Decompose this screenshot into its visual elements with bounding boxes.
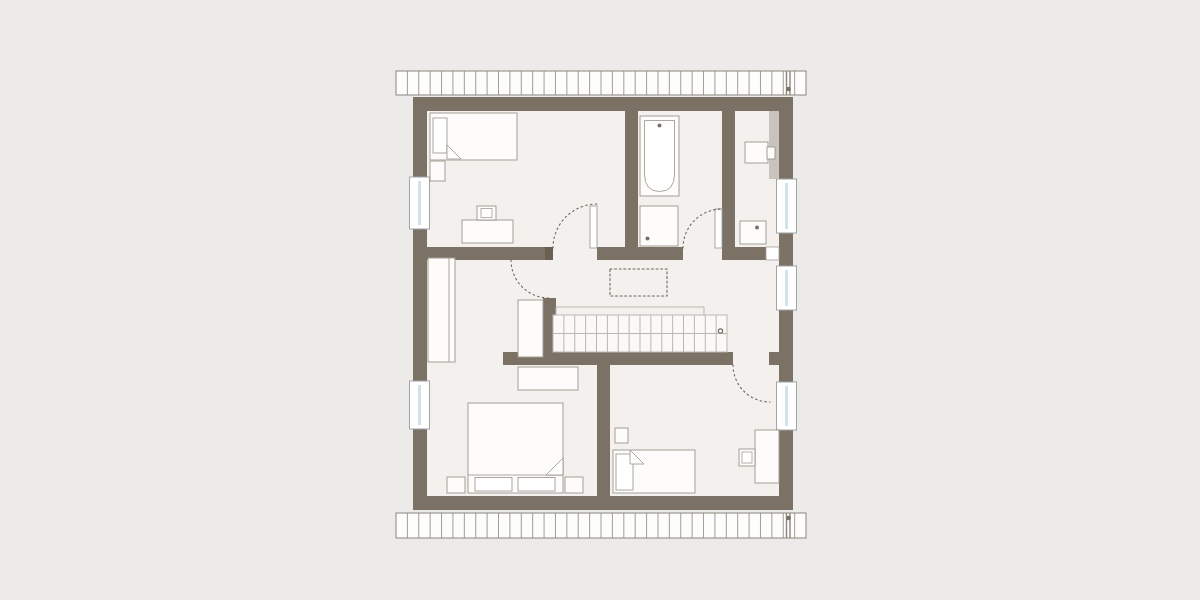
bathtub-basin (645, 121, 675, 192)
window-left-2-glass (418, 385, 421, 425)
window-right-1-glass (785, 183, 788, 229)
wall-bed1-bath (625, 111, 638, 260)
shower-tray (640, 206, 678, 246)
chair-room2 (767, 147, 775, 159)
door-leaf-bedroom1 (590, 206, 597, 248)
roof-strip-top-marker (786, 87, 790, 91)
chair-guest-seat (742, 452, 752, 463)
bathtub-faucet (658, 124, 662, 128)
wardrobe-hall (428, 258, 455, 362)
door-leaf-room2 (766, 247, 779, 260)
floor-plan-svg (0, 0, 1200, 600)
window-left-1-glass (418, 181, 421, 225)
door-leaf-bath (715, 209, 722, 248)
fixtures-bathroom (640, 116, 679, 246)
bed-main-pillow-right (518, 478, 555, 492)
bed-child-pillow (433, 118, 447, 153)
outer-wall-top (413, 97, 793, 111)
shower-drain (646, 237, 650, 241)
nightstand-main-left (447, 477, 465, 493)
wall-hall-bottom-stub (769, 352, 779, 365)
window-right-2-glass (785, 270, 788, 306)
nightstand-child (430, 161, 445, 181)
bed-main-pillow-left (475, 478, 512, 492)
closet-alcove (518, 300, 543, 357)
outer-wall-bottom (413, 496, 793, 510)
nightstand-guest (615, 428, 628, 443)
wall-bath-room2 (722, 111, 735, 247)
knee-wall-strip (769, 111, 779, 179)
roof-strip-bottom-marker (786, 516, 790, 520)
washbasin-room2-drain (755, 226, 759, 230)
desk-room2 (745, 142, 768, 163)
nightstand-main-right (565, 477, 583, 493)
desk-child (462, 220, 513, 243)
dresser-main (518, 367, 578, 390)
washbasin-room2 (740, 221, 766, 244)
desk-guest (755, 430, 779, 483)
wall-hall-top-c (722, 247, 766, 260)
wall-hall-top-a-jamb (545, 247, 553, 260)
wall-hall-top-b (597, 247, 683, 260)
wall-bedrooms-divider (597, 365, 610, 496)
window-right-3-glass (785, 386, 788, 426)
chair-child-seat (481, 209, 492, 218)
outer-wall-left (413, 97, 427, 510)
floor-plan (0, 0, 1200, 600)
